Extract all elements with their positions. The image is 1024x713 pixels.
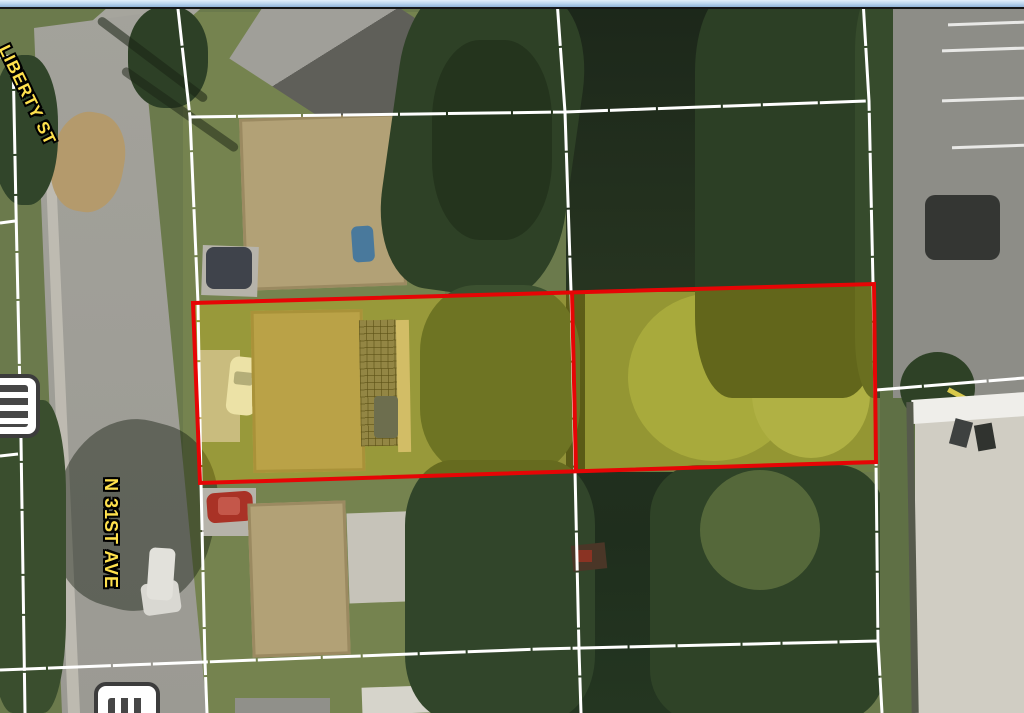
building-symbol-stripes	[0, 385, 28, 427]
selected-parcel-highlight[interactable]	[193, 284, 876, 483]
parcel-line-north	[190, 101, 866, 117]
parcel-overlay	[0, 0, 1024, 713]
parcel-line-south	[0, 641, 878, 670]
window-chrome-strip	[0, 0, 1024, 9]
map-canvas[interactable]: LIBERTY ST N 31ST AVE	[0, 0, 1024, 713]
building-symbol-stripes	[108, 698, 146, 713]
building-symbol-icon	[0, 374, 40, 438]
parcel-line-east-stub	[876, 378, 1024, 390]
street-label-n-31st-ave: N 31ST AVE	[100, 478, 121, 589]
building-symbol-icon	[94, 682, 160, 713]
